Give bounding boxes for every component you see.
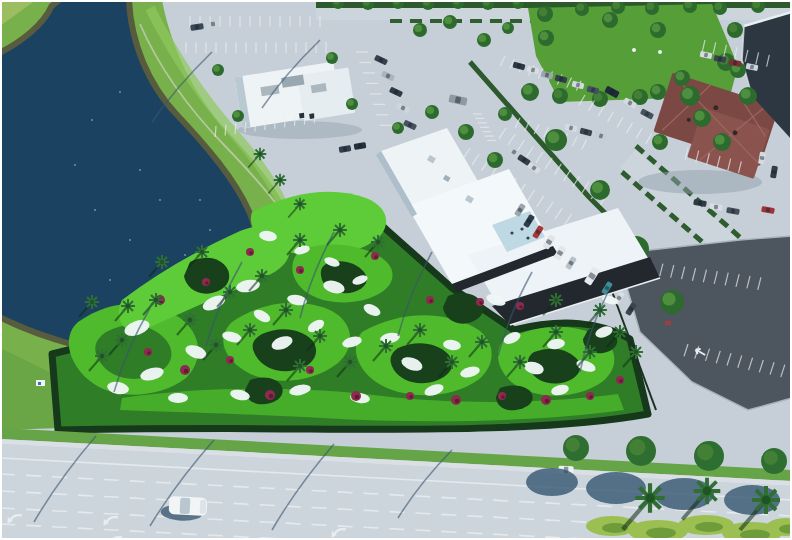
stall-line (229, 16, 230, 27)
scene-svg (0, 0, 792, 540)
stall-line (356, 51, 368, 52)
stall-line (376, 114, 388, 115)
stall-line (363, 72, 375, 73)
stall-line (380, 125, 392, 126)
stall-line (239, 16, 240, 27)
stall-line (319, 16, 320, 27)
stall-line (245, 42, 246, 53)
water-sparkle (119, 91, 121, 93)
stall-line (249, 16, 250, 27)
stall-line (299, 16, 300, 27)
water-sparkle (209, 229, 211, 231)
water-sparkle (184, 254, 186, 256)
tree-shadow (526, 468, 578, 496)
stall-line (373, 104, 385, 105)
stall-line (255, 42, 256, 53)
lakeside-sign (36, 380, 45, 386)
stall-line (359, 62, 371, 63)
stall-line (295, 42, 296, 53)
stall-line (185, 42, 186, 53)
stall-line (366, 83, 378, 84)
stall-line (485, 135, 494, 136)
stall-line (235, 42, 236, 53)
stall-line (325, 42, 326, 53)
stall-line (478, 122, 487, 123)
stall-line (487, 140, 496, 141)
stall-line (215, 42, 216, 53)
water-sparkle (94, 209, 96, 211)
stall-line (289, 16, 290, 27)
stall-line (370, 93, 382, 94)
stall-line (279, 16, 280, 27)
stall-line (265, 42, 266, 53)
field-object (632, 48, 636, 52)
water-sparkle (129, 239, 131, 241)
stall-line (189, 16, 190, 27)
water-sparkle (139, 169, 141, 171)
field-object (658, 50, 662, 54)
stall-line (205, 42, 206, 53)
stall-line (475, 118, 484, 119)
stall-line (482, 131, 491, 132)
water-sparkle (199, 199, 201, 201)
stall-line (195, 42, 196, 53)
lot-marking-red (665, 321, 671, 325)
entrance-door (299, 113, 305, 119)
aerial-photo (0, 0, 792, 540)
water-sparkle (91, 119, 93, 121)
stall-line (219, 16, 220, 27)
stall-line (309, 16, 310, 27)
stall-line (473, 113, 482, 114)
water-sparkle (159, 199, 161, 201)
water-sparkle (109, 279, 111, 281)
water-sparkle (74, 164, 76, 166)
stall-line (285, 42, 286, 53)
stall-line (480, 127, 489, 128)
stall-line (269, 16, 270, 27)
stall-line (305, 42, 306, 53)
stall-line (259, 16, 260, 27)
stall-line (275, 42, 276, 53)
stall-line (225, 42, 226, 53)
sand-bunker (168, 393, 188, 403)
